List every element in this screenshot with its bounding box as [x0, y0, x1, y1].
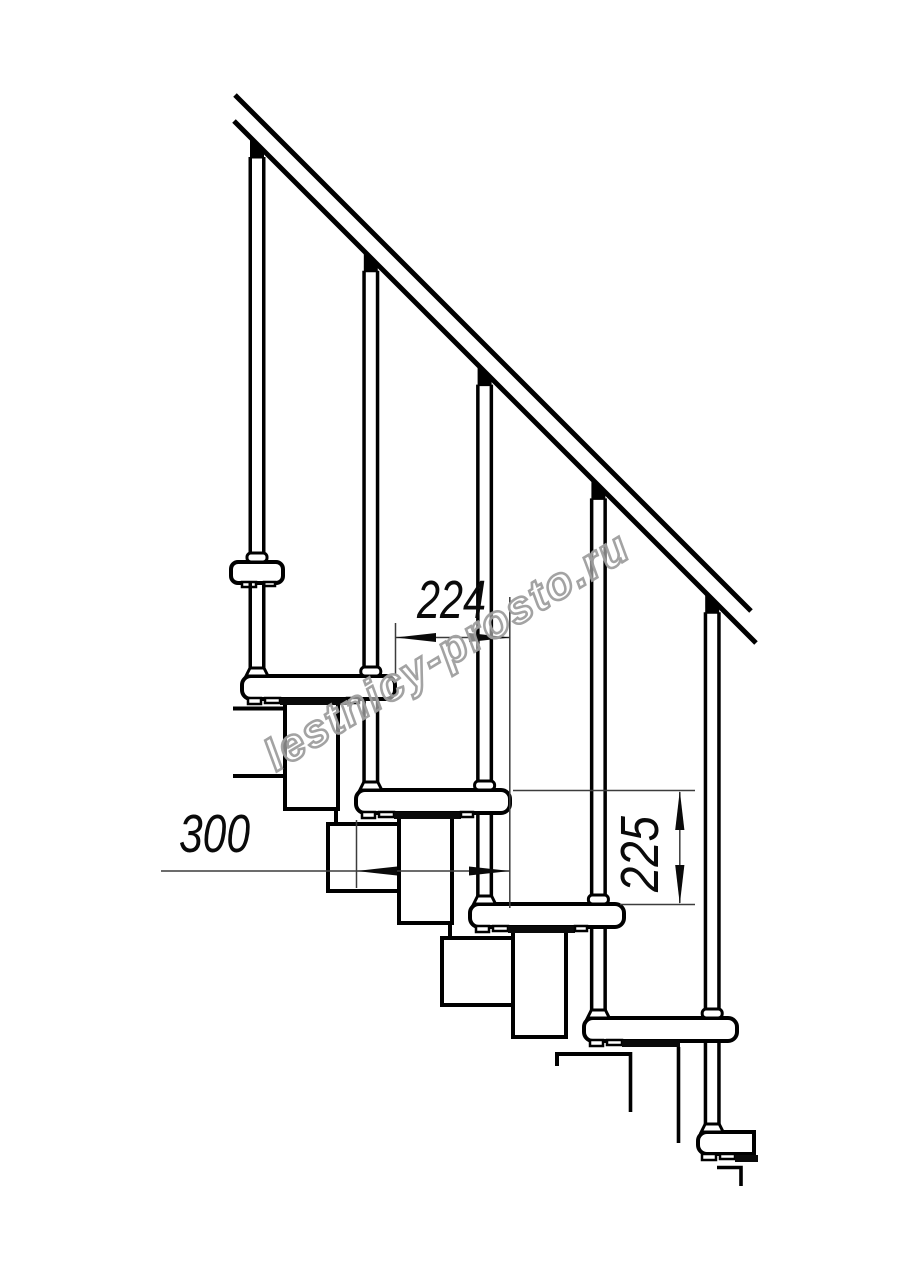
svg-text:300: 300 — [179, 804, 250, 864]
svg-text:225: 225 — [610, 815, 670, 893]
